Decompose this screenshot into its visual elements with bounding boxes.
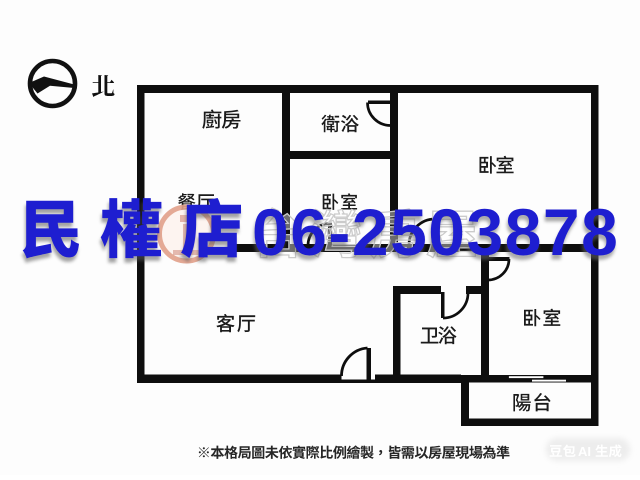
svg-text:06-2503878: 06-2503878 xyxy=(252,195,619,269)
svg-text:AI: AI xyxy=(578,444,591,459)
